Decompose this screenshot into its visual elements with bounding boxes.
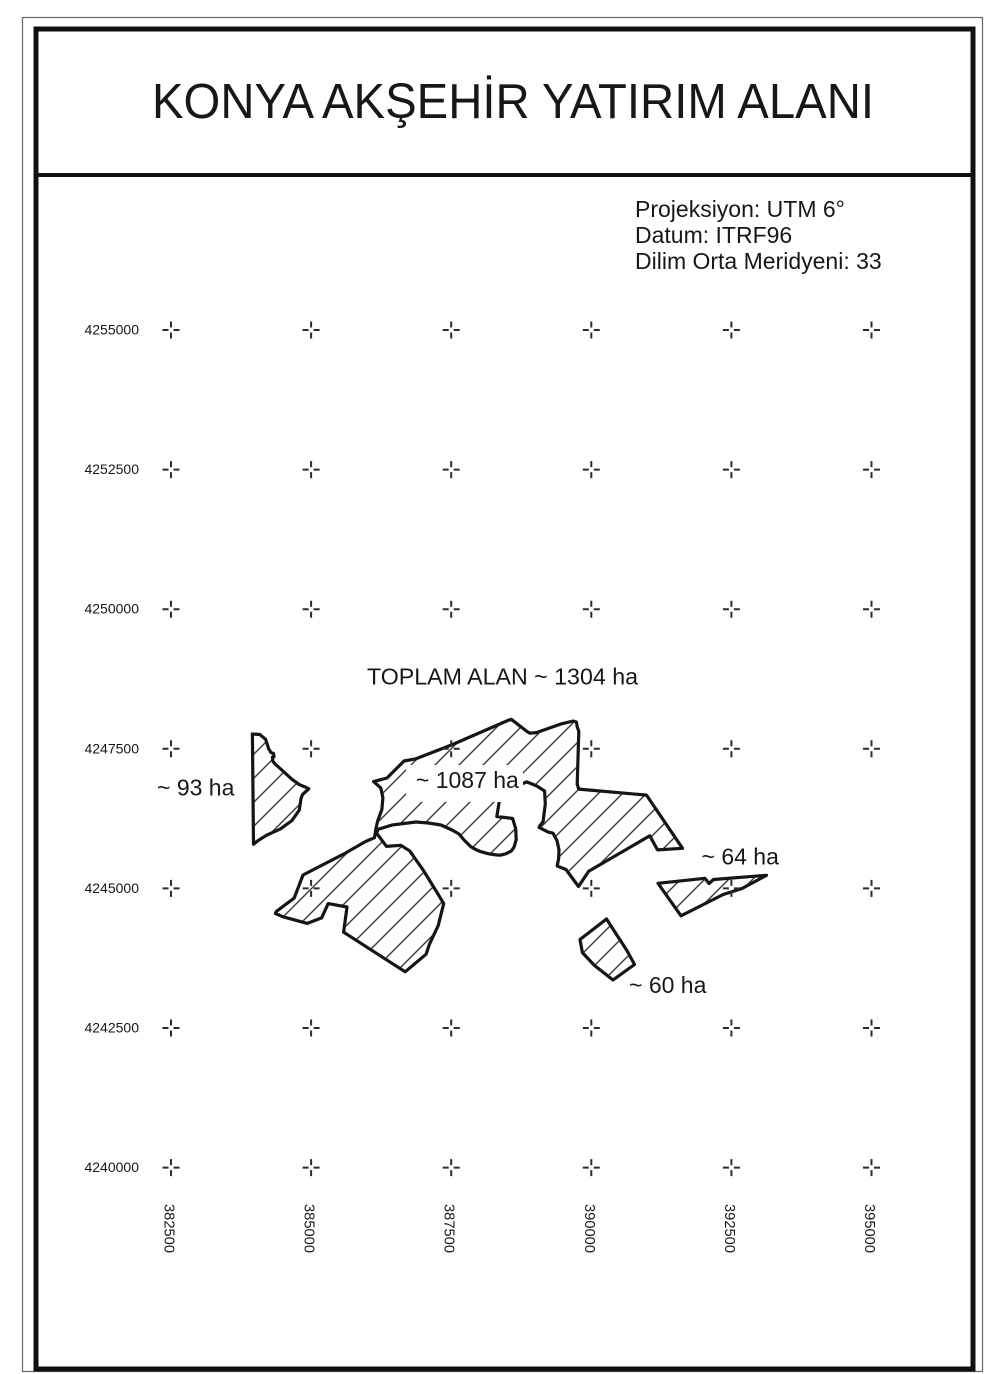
svg-text:4247500: 4247500 [84, 740, 139, 756]
svg-text:387500: 387500 [441, 1204, 457, 1253]
svg-text:~ 60 ha: ~ 60 ha [629, 972, 707, 998]
svg-text:4240000: 4240000 [84, 1159, 139, 1175]
svg-text:4242500: 4242500 [84, 1020, 139, 1036]
svg-text:4250000: 4250000 [84, 601, 139, 617]
svg-text:385000: 385000 [301, 1204, 317, 1253]
svg-text:~ 1087 ha: ~ 1087 ha [416, 767, 519, 793]
svg-text:395000: 395000 [861, 1204, 877, 1253]
svg-text:4245000: 4245000 [84, 880, 139, 896]
svg-text:~ 93 ha: ~ 93 ha [157, 775, 235, 801]
svg-text:Datum: ITRF96: Datum: ITRF96 [635, 222, 792, 248]
svg-text:382500: 382500 [161, 1204, 177, 1253]
svg-text:4252500: 4252500 [84, 461, 139, 477]
svg-text:TOPLAM ALAN ~ 1304 ha: TOPLAM ALAN ~ 1304 ha [367, 664, 638, 690]
svg-text:KONYA AKŞEHİR YATIRIM ALANI: KONYA AKŞEHİR YATIRIM ALANI [152, 74, 874, 129]
svg-text:~ 64 ha: ~ 64 ha [702, 844, 780, 870]
svg-text:4255000: 4255000 [84, 322, 139, 338]
svg-text:Dilim Orta Meridyeni: 33: Dilim Orta Meridyeni: 33 [635, 248, 882, 274]
svg-text:392500: 392500 [721, 1204, 737, 1253]
svg-text:390000: 390000 [581, 1204, 597, 1253]
svg-text:Projeksiyon: UTM 6°: Projeksiyon: UTM 6° [635, 196, 845, 222]
